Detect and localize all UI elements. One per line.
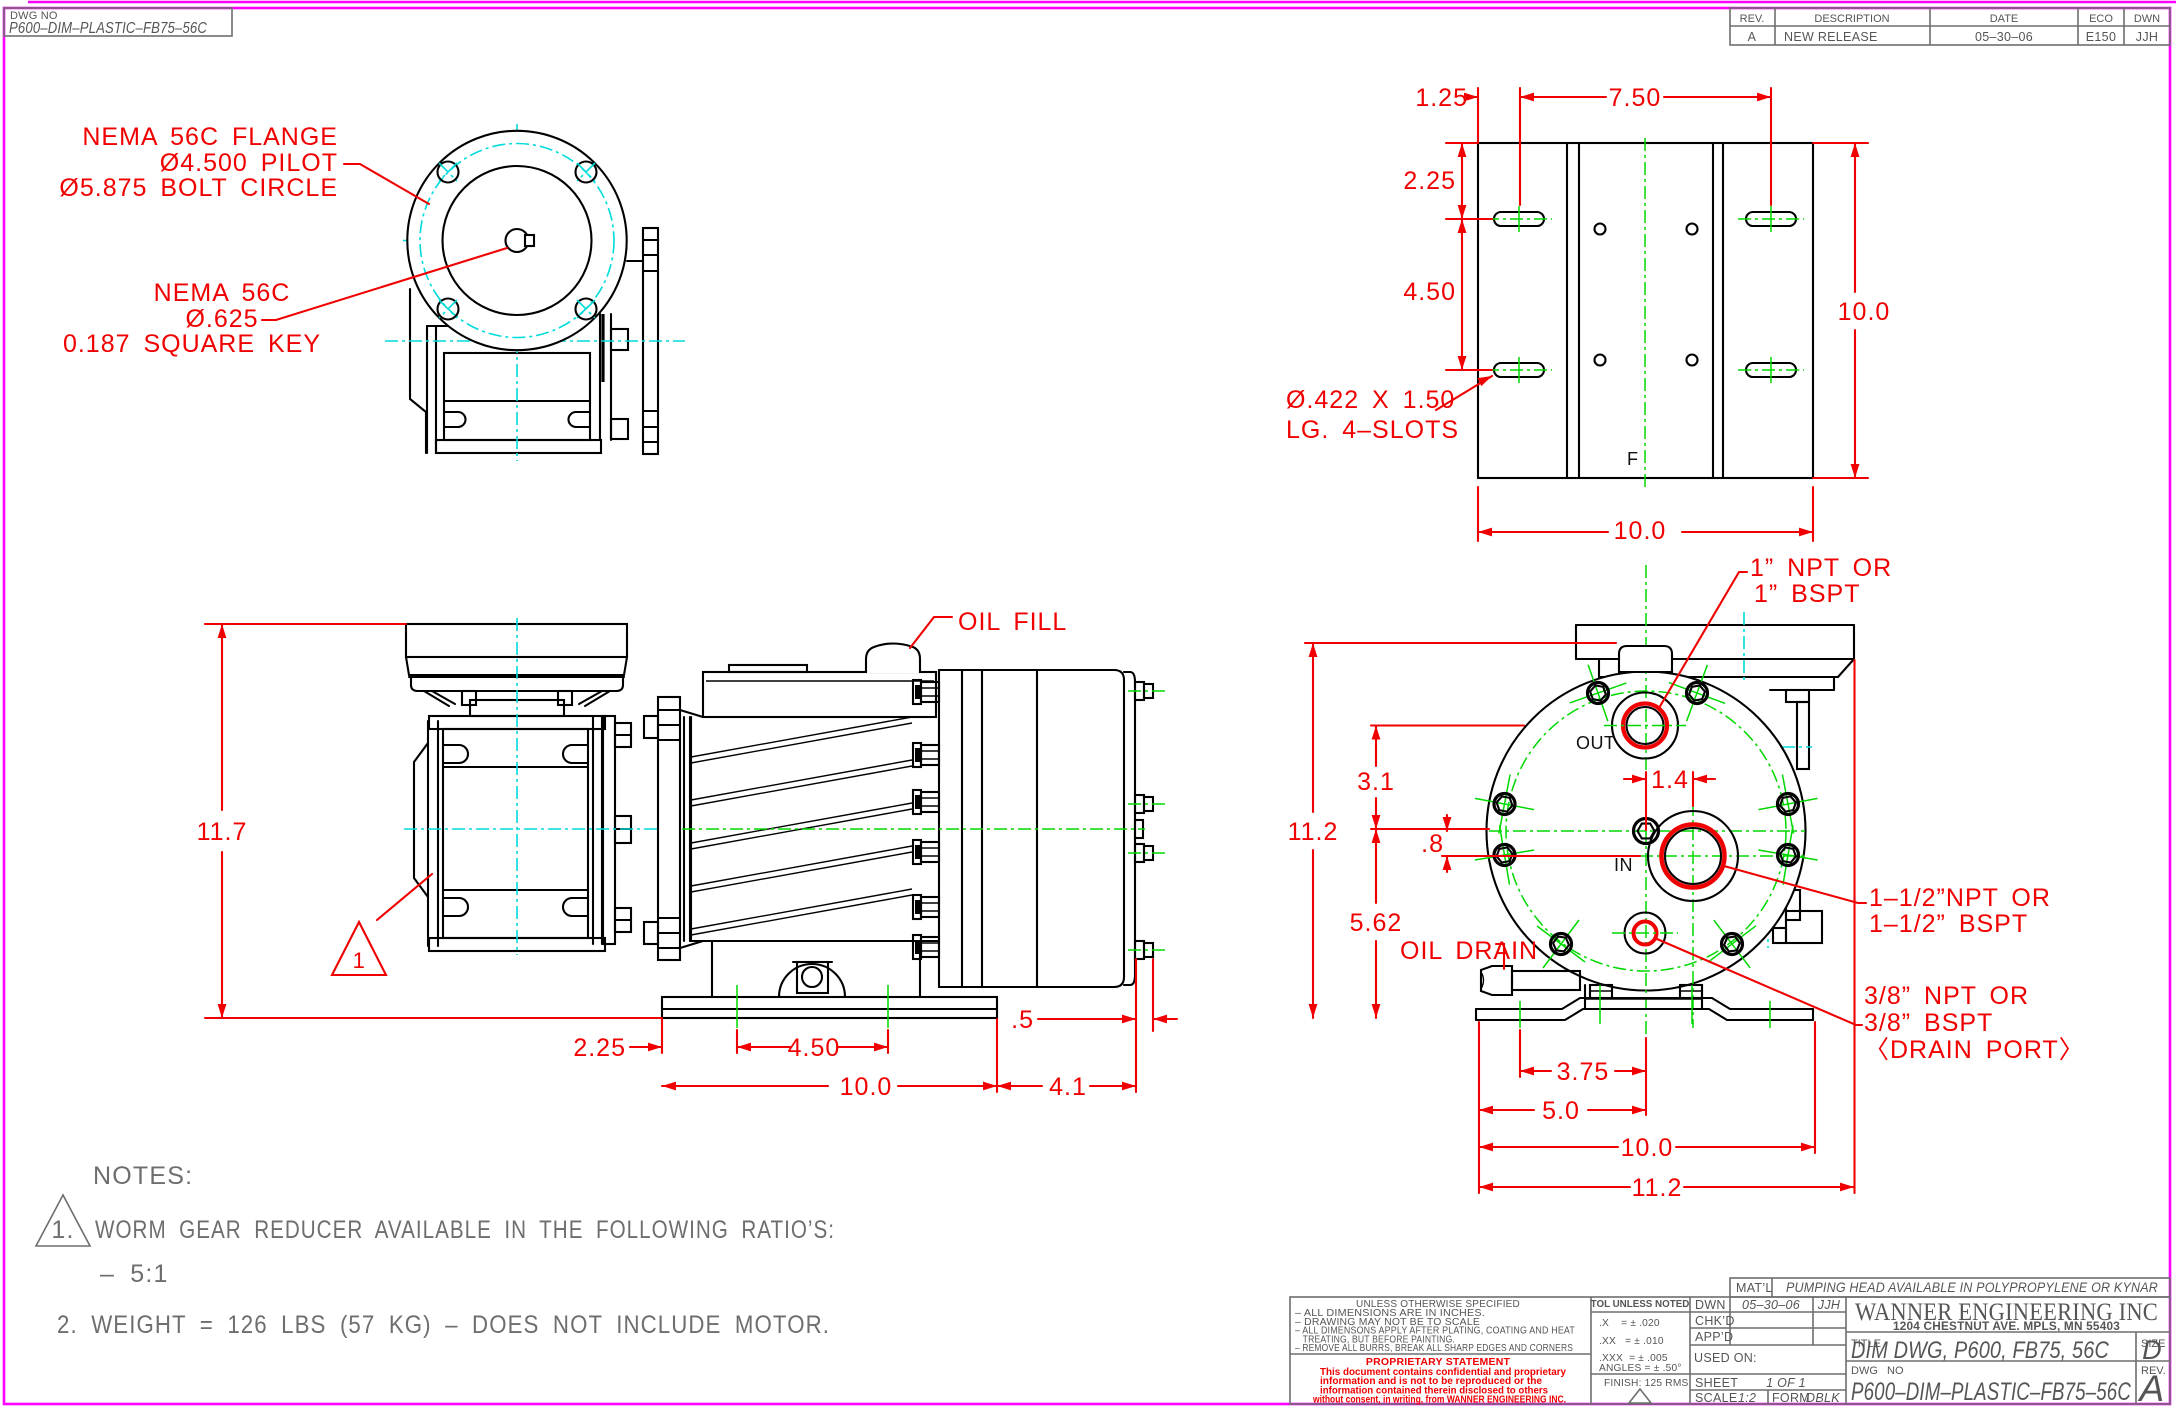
svg-text:FORM: FORM xyxy=(1772,1391,1810,1405)
svg-text:.8: .8 xyxy=(1421,830,1444,858)
svg-text:05–30–06: 05–30–06 xyxy=(1742,1298,1800,1312)
svg-text:NOTES:: NOTES: xyxy=(93,1162,193,1190)
svg-text:DBLK: DBLK xyxy=(1806,1391,1840,1405)
svg-text:LG. 4–SLOTS: LG. 4–SLOTS xyxy=(1286,416,1459,444)
svg-text:PUMPING HEAD AVAILABLE IN: PUMPING HEAD AVAILABLE IN POLYPROPYLENE … xyxy=(1786,1279,2158,1295)
svg-text:NEMA 56C: NEMA 56C xyxy=(154,279,291,307)
svg-text:11.2: 11.2 xyxy=(1632,1174,1683,1202)
svg-text:1.25: 1.25 xyxy=(1415,84,1468,112)
svg-text:ANGLES = ± .50°: ANGLES = ± .50° xyxy=(1599,1363,1682,1374)
svg-text:Ø.625: Ø.625 xyxy=(185,305,258,333)
svg-text:10.0: 10.0 xyxy=(1614,517,1667,545)
svg-text:.5: .5 xyxy=(1011,1006,1034,1034)
svg-text:NEMA 56C FLANGE: NEMA 56C FLANGE xyxy=(82,123,338,151)
svg-text:3/8” NPT OR: 3/8” NPT OR xyxy=(1864,982,2029,1010)
svg-text:NEW RELEASE: NEW RELEASE xyxy=(1784,30,1878,44)
svg-text:F: F xyxy=(1627,449,1639,469)
svg-text:CHK’D: CHK’D xyxy=(1695,1314,1735,1328)
svg-text:11.2: 11.2 xyxy=(1288,818,1339,846)
svg-text:DWN: DWN xyxy=(1695,1298,1726,1312)
svg-text:DESCRIPTION: DESCRIPTION xyxy=(1814,13,1889,25)
svg-text:11.7: 11.7 xyxy=(197,818,248,846)
svg-text:1.4: 1.4 xyxy=(1651,766,1689,794)
svg-text:OIL DRAIN: OIL DRAIN xyxy=(1400,937,1538,965)
svg-text:Ø.422 X 1.50: Ø.422 X 1.50 xyxy=(1286,386,1455,414)
svg-text:– REMOVE ALL BURRS, BREAK ALL: – REMOVE ALL BURRS, BREAK ALL SHARP EDGE… xyxy=(1295,1343,1573,1354)
svg-text:1–1/2” BSPT: 1–1/2” BSPT xyxy=(1869,910,2028,938)
svg-text:A: A xyxy=(2138,1368,2165,1408)
svg-text:without consent, in writing: without consent, in writing, from WANNER… xyxy=(1312,1395,1566,1406)
svg-text:〈DRAIN PORT〉: 〈DRAIN PORT〉 xyxy=(1864,1036,2085,1064)
svg-text:3/8” BSPT: 3/8” BSPT xyxy=(1864,1009,1993,1037)
svg-text:1 OF 1: 1 OF 1 xyxy=(1766,1376,1806,1390)
svg-text:4.50: 4.50 xyxy=(1403,278,1456,306)
svg-text:TOL UNLESS NOTED: TOL UNLESS NOTED xyxy=(1591,1299,1690,1310)
svg-text:10.0: 10.0 xyxy=(1621,1134,1674,1162)
svg-text:2.25: 2.25 xyxy=(573,1034,626,1062)
svg-text:USED ON:: USED ON: xyxy=(1694,1351,1757,1365)
svg-text:E150: E150 xyxy=(2086,30,2116,44)
svg-text:1: 1 xyxy=(353,948,366,973)
svg-text:OIL FILL: OIL FILL xyxy=(958,608,1067,636)
svg-text:DATE: DATE xyxy=(1990,13,2019,25)
svg-text:Ø5.875 BOLT CIRCLE: Ø5.875 BOLT CIRCLE xyxy=(59,174,338,202)
svg-text:FINISH: 125 RMS: FINISH: 125 RMS xyxy=(1604,1378,1689,1389)
svg-text:P600–DIM–PLASTIC–FB75–56C: P600–DIM–PLASTIC–FB75–56C xyxy=(1851,1378,2132,1406)
svg-text:APP’D: APP’D xyxy=(1695,1330,1733,1344)
svg-text:JJH: JJH xyxy=(1817,1298,1841,1312)
svg-text:4.1: 4.1 xyxy=(1049,1073,1087,1101)
svg-text:DWG NO: DWG NO xyxy=(1851,1365,1904,1377)
svg-text:WORM GEAR REDUCER AVAILABLE: WORM GEAR REDUCER AVAILABLE IN THE FOLLO… xyxy=(95,1216,835,1244)
svg-text:05–30–06: 05–30–06 xyxy=(1975,30,2033,44)
svg-text:REV.: REV. xyxy=(1740,13,1765,25)
svg-text:IN: IN xyxy=(1614,855,1633,875)
svg-text:.XX = ± .010: .XX = ± .010 xyxy=(1599,1336,1664,1347)
svg-text:4.50: 4.50 xyxy=(788,1034,841,1062)
svg-text:3.75: 3.75 xyxy=(1557,1058,1610,1086)
svg-text:5.0: 5.0 xyxy=(1542,1097,1580,1125)
svg-text:2.25: 2.25 xyxy=(1403,167,1456,195)
svg-text:1:2: 1:2 xyxy=(1738,1391,1756,1405)
svg-text:DIM DWG, P600, FB75, 56C: DIM DWG, P600, FB75, 56C xyxy=(1851,1337,2109,1364)
svg-text:Ø4.500 PILOT: Ø4.500 PILOT xyxy=(160,149,338,177)
svg-text:1.: 1. xyxy=(51,1216,74,1244)
svg-text:MAT’L: MAT’L xyxy=(1736,1281,1773,1295)
svg-text:10.0: 10.0 xyxy=(1838,298,1891,326)
svg-text:2. WEIGHT = 126 LBS (57: 2. WEIGHT = 126 LBS (57 KG) – DOES NOT I… xyxy=(57,1311,830,1339)
svg-text:7.50: 7.50 xyxy=(1609,84,1662,112)
svg-text:SCALE: SCALE xyxy=(1695,1391,1738,1405)
svg-text:1–1/2”NPT OR: 1–1/2”NPT OR xyxy=(1869,884,2051,912)
svg-text:– 5:1: – 5:1 xyxy=(100,1260,169,1288)
svg-text:5.62: 5.62 xyxy=(1350,909,1403,937)
svg-text:P600–DIM–PLASTIC–FB75–56C: P600–DIM–PLASTIC–FB75–56C xyxy=(9,20,207,37)
svg-text:3.1: 3.1 xyxy=(1357,768,1395,796)
svg-text:SHEET: SHEET xyxy=(1695,1376,1738,1390)
svg-text:10.0: 10.0 xyxy=(840,1073,893,1101)
svg-text:JJH: JJH xyxy=(2136,30,2158,44)
svg-text:A: A xyxy=(1748,30,1757,44)
svg-text:ECO: ECO xyxy=(2089,13,2113,25)
svg-text:DWN: DWN xyxy=(2134,13,2160,25)
svg-text:0.187 SQUARE KEY: 0.187 SQUARE KEY xyxy=(63,330,321,358)
svg-text:D: D xyxy=(2142,1335,2162,1365)
svg-text:OUT: OUT xyxy=(1576,733,1616,753)
svg-text:1” NPT OR: 1” NPT OR xyxy=(1750,554,1892,582)
svg-text:.X = ± .020: .X = ± .020 xyxy=(1599,1318,1660,1329)
svg-text:1” BSPT: 1” BSPT xyxy=(1754,580,1860,608)
